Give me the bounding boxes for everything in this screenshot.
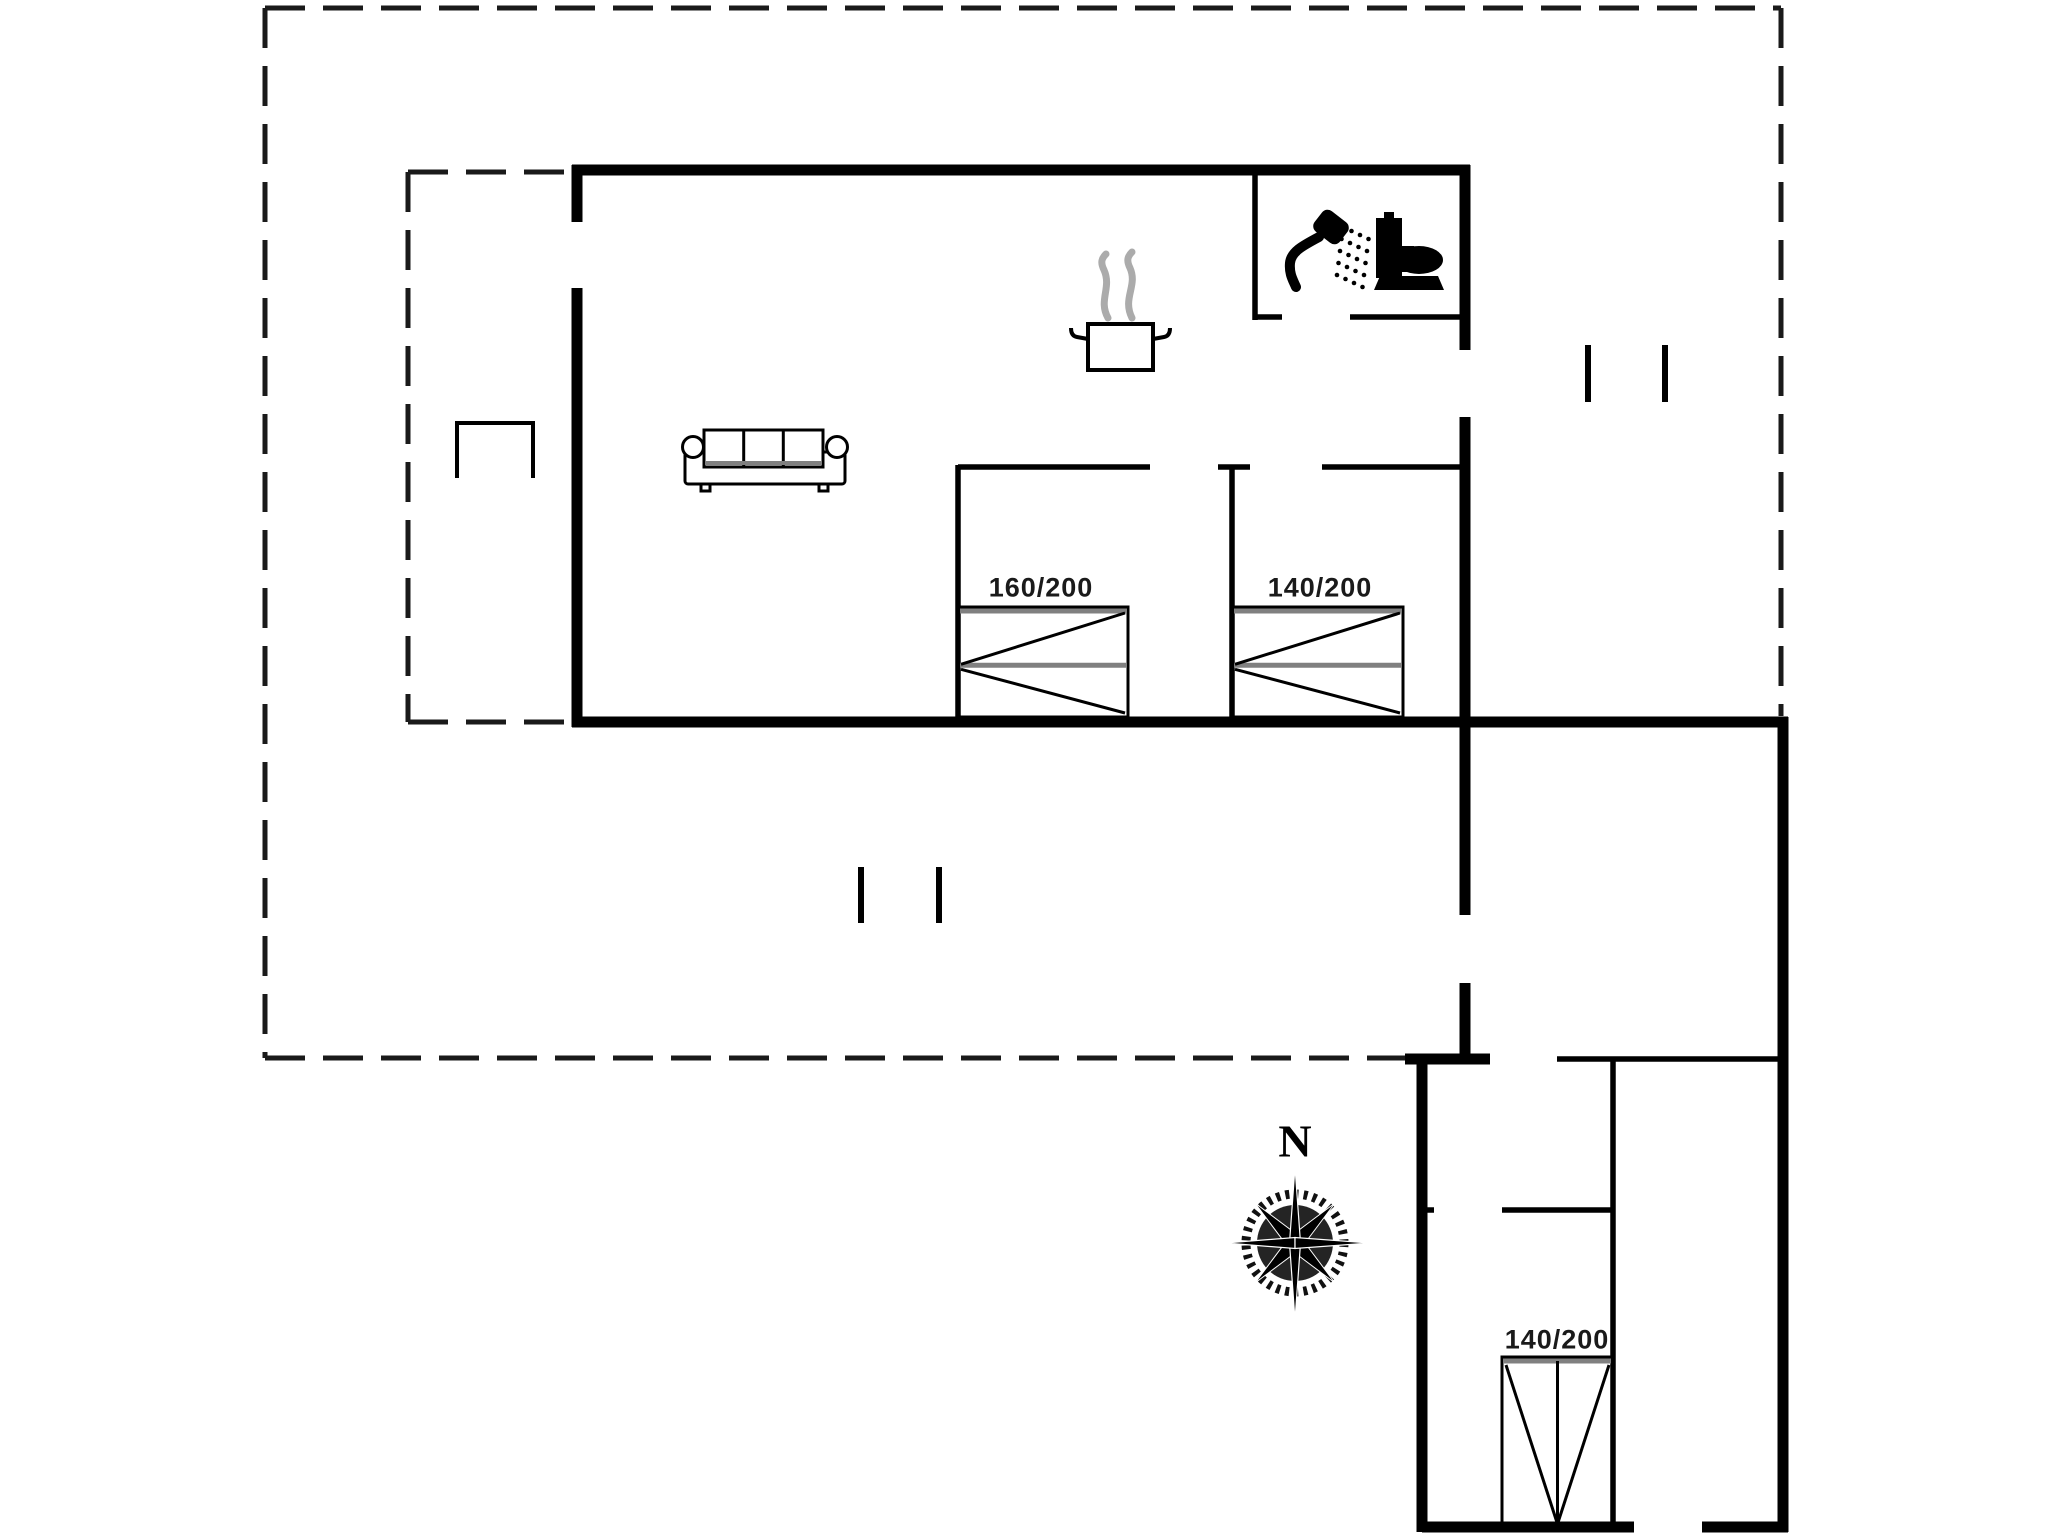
bed-size-label: 140/200 — [1268, 573, 1373, 604]
steam-icon — [1102, 252, 1133, 318]
bed-size-label: 160/200 — [989, 573, 1094, 604]
terrace-table-icon — [455, 421, 535, 478]
bed-symbol — [1232, 607, 1403, 717]
bed-size-label: 140/200 — [1505, 1325, 1610, 1356]
interior-walls — [958, 170, 1786, 1529]
floor-plan-drawing — [0, 0, 2048, 1536]
floor-plan-canvas: 160/200 140/200 140/200 N — [0, 0, 2048, 1536]
window-markers — [861, 345, 1665, 923]
sofa-icon — [683, 430, 848, 491]
compass-north-label: N — [1278, 1115, 1311, 1168]
bed-symbol — [958, 607, 1128, 717]
cooking-pot-icon — [1071, 324, 1170, 370]
toilet-icon — [1374, 212, 1444, 290]
compass-rose-icon — [1225, 1167, 1370, 1320]
shower-icon — [1290, 207, 1371, 289]
bed-symbol — [1502, 1357, 1613, 1527]
